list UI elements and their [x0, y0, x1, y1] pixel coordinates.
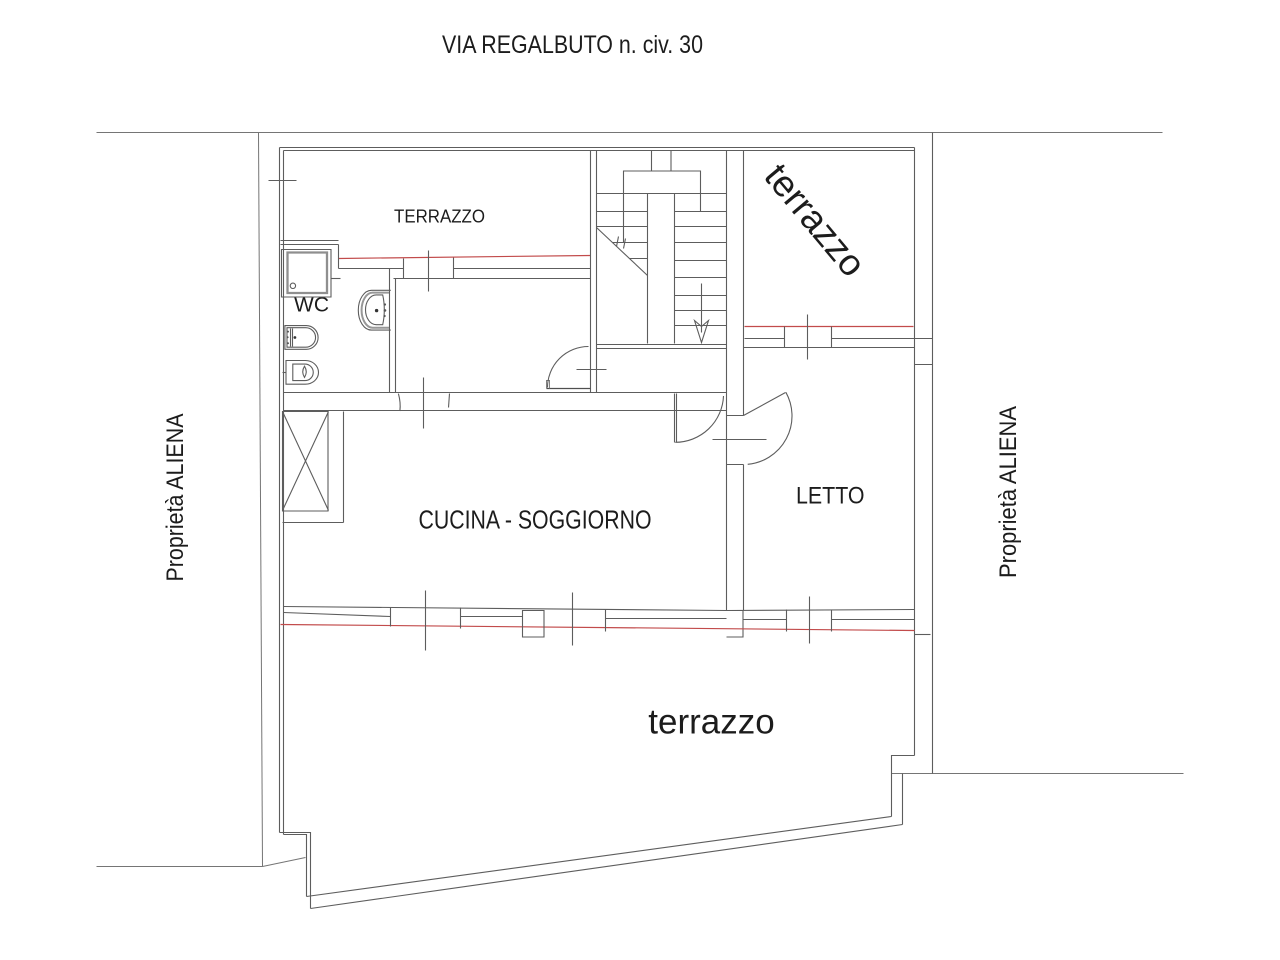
- svg-text:VIA REGALBUTO n. civ. 30: VIA REGALBUTO n. civ. 30: [442, 31, 703, 59]
- svg-text:Proprietà ALIENA: Proprietà ALIENA: [995, 406, 1022, 578]
- svg-text:TERRAZZO: TERRAZZO: [394, 207, 485, 227]
- svg-text:LETTO: LETTO: [796, 483, 865, 510]
- svg-text:CUCINA - SOGGIORNO: CUCINA - SOGGIORNO: [419, 505, 652, 535]
- svg-text:Proprietà ALIENA: Proprietà ALIENA: [162, 414, 189, 582]
- svg-text:terrazzo: terrazzo: [648, 703, 774, 742]
